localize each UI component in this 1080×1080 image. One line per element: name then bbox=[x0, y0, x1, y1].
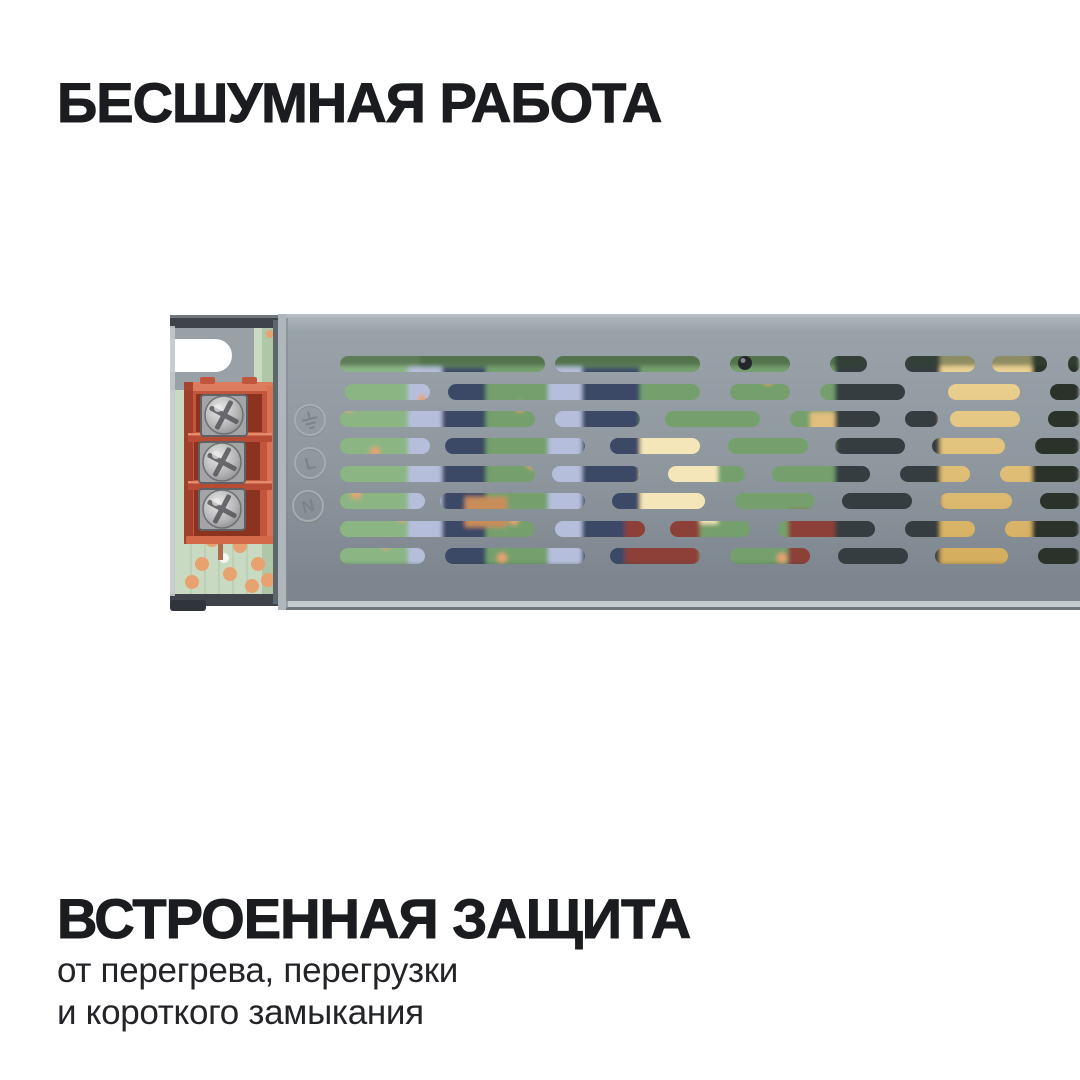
terminal-screw bbox=[201, 393, 247, 436]
solder-pad bbox=[266, 330, 274, 338]
solder-pad bbox=[251, 557, 265, 571]
mounting-notch bbox=[170, 339, 232, 372]
solder-pad bbox=[195, 557, 209, 571]
solder-pad bbox=[223, 567, 237, 581]
top-title: БЕСШУМНАЯ РАБОТА bbox=[57, 70, 661, 135]
solder-pad bbox=[185, 575, 199, 589]
solder-pad bbox=[245, 579, 259, 593]
subtitle-line-2: и короткого замыкания bbox=[57, 993, 424, 1032]
bottom-title: ВСТРОЕННАЯ ЗАЩИТА bbox=[57, 886, 690, 951]
vent-grille-cover bbox=[273, 314, 1080, 610]
solder-pad bbox=[261, 573, 275, 587]
terminal-block bbox=[184, 377, 276, 560]
subtitle-line-1: от перегрева, перегрузки bbox=[57, 951, 458, 990]
terminal-screw bbox=[199, 440, 245, 483]
bottom-subtitle: от перегрева, перегрузки и короткого зам… bbox=[57, 950, 458, 1034]
product-card: БЕСШУМНАЯ РАБОТА LN ВСТРОЕННАЯ ЗАЩИТА от… bbox=[0, 0, 1080, 1080]
cover-screw bbox=[738, 356, 752, 370]
power-supply-illustration: LN bbox=[170, 312, 1080, 612]
power-supply-photo: LN bbox=[170, 312, 1080, 612]
terminal-screw bbox=[199, 487, 245, 530]
